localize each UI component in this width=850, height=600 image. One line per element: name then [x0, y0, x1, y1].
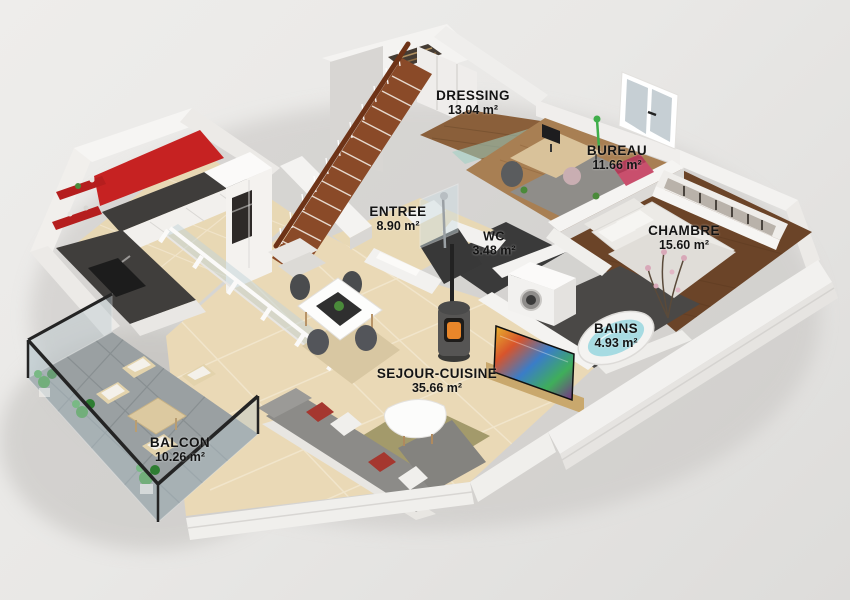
dining-chair: [355, 325, 377, 351]
stove-flame: [447, 322, 461, 339]
table-plant: [334, 301, 344, 311]
floorplan-3d-render: DRESSING 13.04 m² BUREAU 11.66 m² ENTREE…: [0, 0, 850, 600]
pouf: [563, 167, 581, 185]
shower-head: [440, 192, 448, 200]
dining-chair: [290, 274, 310, 300]
office-chair: [501, 161, 523, 187]
dining-chair: [307, 329, 329, 355]
floorplan-scene: [0, 0, 850, 600]
